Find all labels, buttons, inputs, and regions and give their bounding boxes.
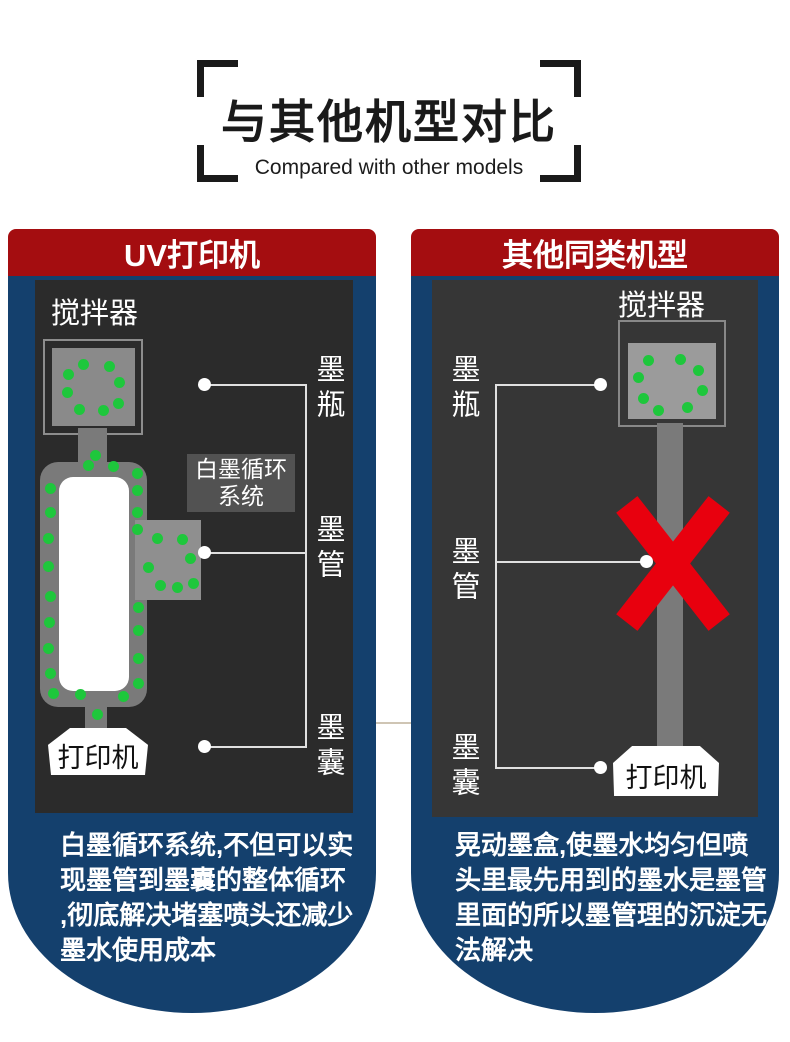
ink-drop-dot [693, 365, 704, 376]
uv-printer-panel-header: UV打印机 [8, 229, 376, 276]
page-title: 与其他机型对比 [197, 60, 581, 152]
printer-label: 打印机 [58, 736, 139, 775]
white-ink-system-box: 白墨循环 系统 [187, 454, 295, 512]
ink-drop-dot [63, 369, 74, 380]
page: 与其他机型对比 Compared with other models UV打印机… [0, 0, 790, 1042]
corner-bracket-top-right-icon [540, 60, 581, 97]
connector-line [495, 767, 601, 769]
corner-bracket-top-left-icon [197, 60, 238, 97]
connector-dot [198, 546, 211, 559]
ink-drop-dot [90, 450, 101, 461]
ink-drop-dot [633, 372, 644, 383]
other-models-panel: 其他同类机型 搅拌器 打印机 [411, 229, 779, 1013]
ink-drop-dot [132, 468, 143, 479]
ink-drop-dot [114, 377, 125, 388]
connector-line [495, 561, 647, 563]
ink-drop-dot [133, 602, 144, 613]
ink-drop-dot [92, 709, 103, 720]
printer-shape: 打印机 [48, 728, 148, 775]
page-subtitle: Compared with other models [197, 156, 581, 180]
ink-drop-dot [185, 553, 196, 564]
ink-drop-dot [643, 355, 654, 366]
ink-drop-dot [172, 582, 183, 593]
other-models-panel-header: 其他同类机型 [411, 229, 779, 276]
stirrer-box [43, 339, 143, 435]
ink-drop-dot [143, 562, 154, 573]
ink-drop-dot [108, 461, 119, 472]
connector-line [205, 552, 307, 554]
ink-drop-dot [118, 691, 129, 702]
ink-drop-dot [43, 561, 54, 572]
ink-drop-dot [132, 524, 143, 535]
ink-bottle-label: 墨瓶 [448, 354, 477, 424]
connector-dot [198, 378, 211, 391]
printer-shape: 打印机 [613, 746, 719, 796]
corner-bracket-bottom-right-icon [540, 145, 581, 182]
uv-printer-panel: UV打印机 搅拌器 白墨循环 系统 打印机 [8, 229, 376, 1013]
printer-label: 打印机 [626, 756, 707, 795]
uv-printer-panel-title: UV打印机 [124, 230, 260, 275]
uv-printer-panel-body: 搅拌器 白墨循环 系统 打印机 [8, 276, 376, 1013]
ink-circulation-loop [40, 462, 147, 707]
ink-drop-dot [104, 361, 115, 372]
ink-circulation-loop-core [59, 477, 129, 691]
connector-dot [594, 378, 607, 391]
ink-drop-dot [43, 643, 54, 654]
ink-sac-label: 墨囊 [448, 732, 477, 802]
ink-drop-dot [675, 354, 686, 365]
ink-drop-dot [155, 580, 166, 591]
uv-printer-description: 白墨循环系统,不但可以实 现墨管到墨囊的整体循环 ,彻底解决堵塞喷头还减少 墨水… [60, 828, 360, 968]
uv-printer-diagram: 搅拌器 白墨循环 系统 打印机 [35, 280, 353, 813]
ink-drop-dot [653, 405, 664, 416]
connector-bracket-line [305, 384, 307, 748]
ink-drop-dot [152, 533, 163, 544]
ink-bottle-label: 墨瓶 [313, 354, 342, 424]
ink-drop-dot [45, 483, 56, 494]
ink-drop-dot [78, 359, 89, 370]
ink-drop-dot [113, 398, 124, 409]
ink-drop-dot [45, 668, 56, 679]
stirrer-label: 搅拌器 [618, 282, 705, 324]
ink-drop-dot [133, 653, 144, 664]
ink-drop-dot [133, 678, 144, 689]
ink-drop-dot [697, 385, 708, 396]
other-models-panel-body: 搅拌器 打印机 墨瓶 墨管 墨囊 [411, 276, 779, 1013]
ink-drop-dot [682, 402, 693, 413]
other-models-diagram: 搅拌器 打印机 墨瓶 墨管 墨囊 [432, 280, 758, 817]
ink-tube-label: 墨管 [313, 514, 342, 584]
other-models-description: 晃动墨盒,使墨水均匀但喷 头里最先用到的墨水是墨管 里面的所以墨管理的沉淀无 法… [455, 828, 775, 968]
ink-drop-dot [44, 617, 55, 628]
connector-dot [198, 740, 211, 753]
ink-drop-dot [45, 507, 56, 518]
stirrer-label: 搅拌器 [51, 290, 138, 332]
connector-line [205, 384, 307, 386]
ink-tube-label: 墨管 [448, 536, 477, 606]
connector-dot [640, 555, 653, 568]
ink-drop-dot [74, 404, 85, 415]
title-block: 与其他机型对比 Compared with other models [197, 60, 581, 182]
connector-line [495, 384, 601, 386]
ink-drop-dot [62, 387, 73, 398]
connector-dot [594, 761, 607, 774]
ink-drop-dot [75, 689, 86, 700]
ink-drop-dot [133, 625, 144, 636]
page-divider-line [375, 722, 412, 724]
other-models-panel-title: 其他同类机型 [502, 230, 688, 275]
connector-line [205, 746, 307, 748]
ink-drop-dot [43, 533, 54, 544]
corner-bracket-bottom-left-icon [197, 145, 238, 182]
ink-drop-dot [132, 507, 143, 518]
ink-drop-dot [48, 688, 59, 699]
ink-drop-dot [188, 578, 199, 589]
connector-bracket-line [495, 384, 497, 769]
ink-drop-dot [45, 591, 56, 602]
ink-drop-dot [132, 485, 143, 496]
ink-sac-label: 墨囊 [313, 712, 342, 782]
ink-drop-dot [83, 460, 94, 471]
ink-drop-dot [98, 405, 109, 416]
ink-drop-dot [638, 393, 649, 404]
ink-drop-dot [177, 534, 188, 545]
